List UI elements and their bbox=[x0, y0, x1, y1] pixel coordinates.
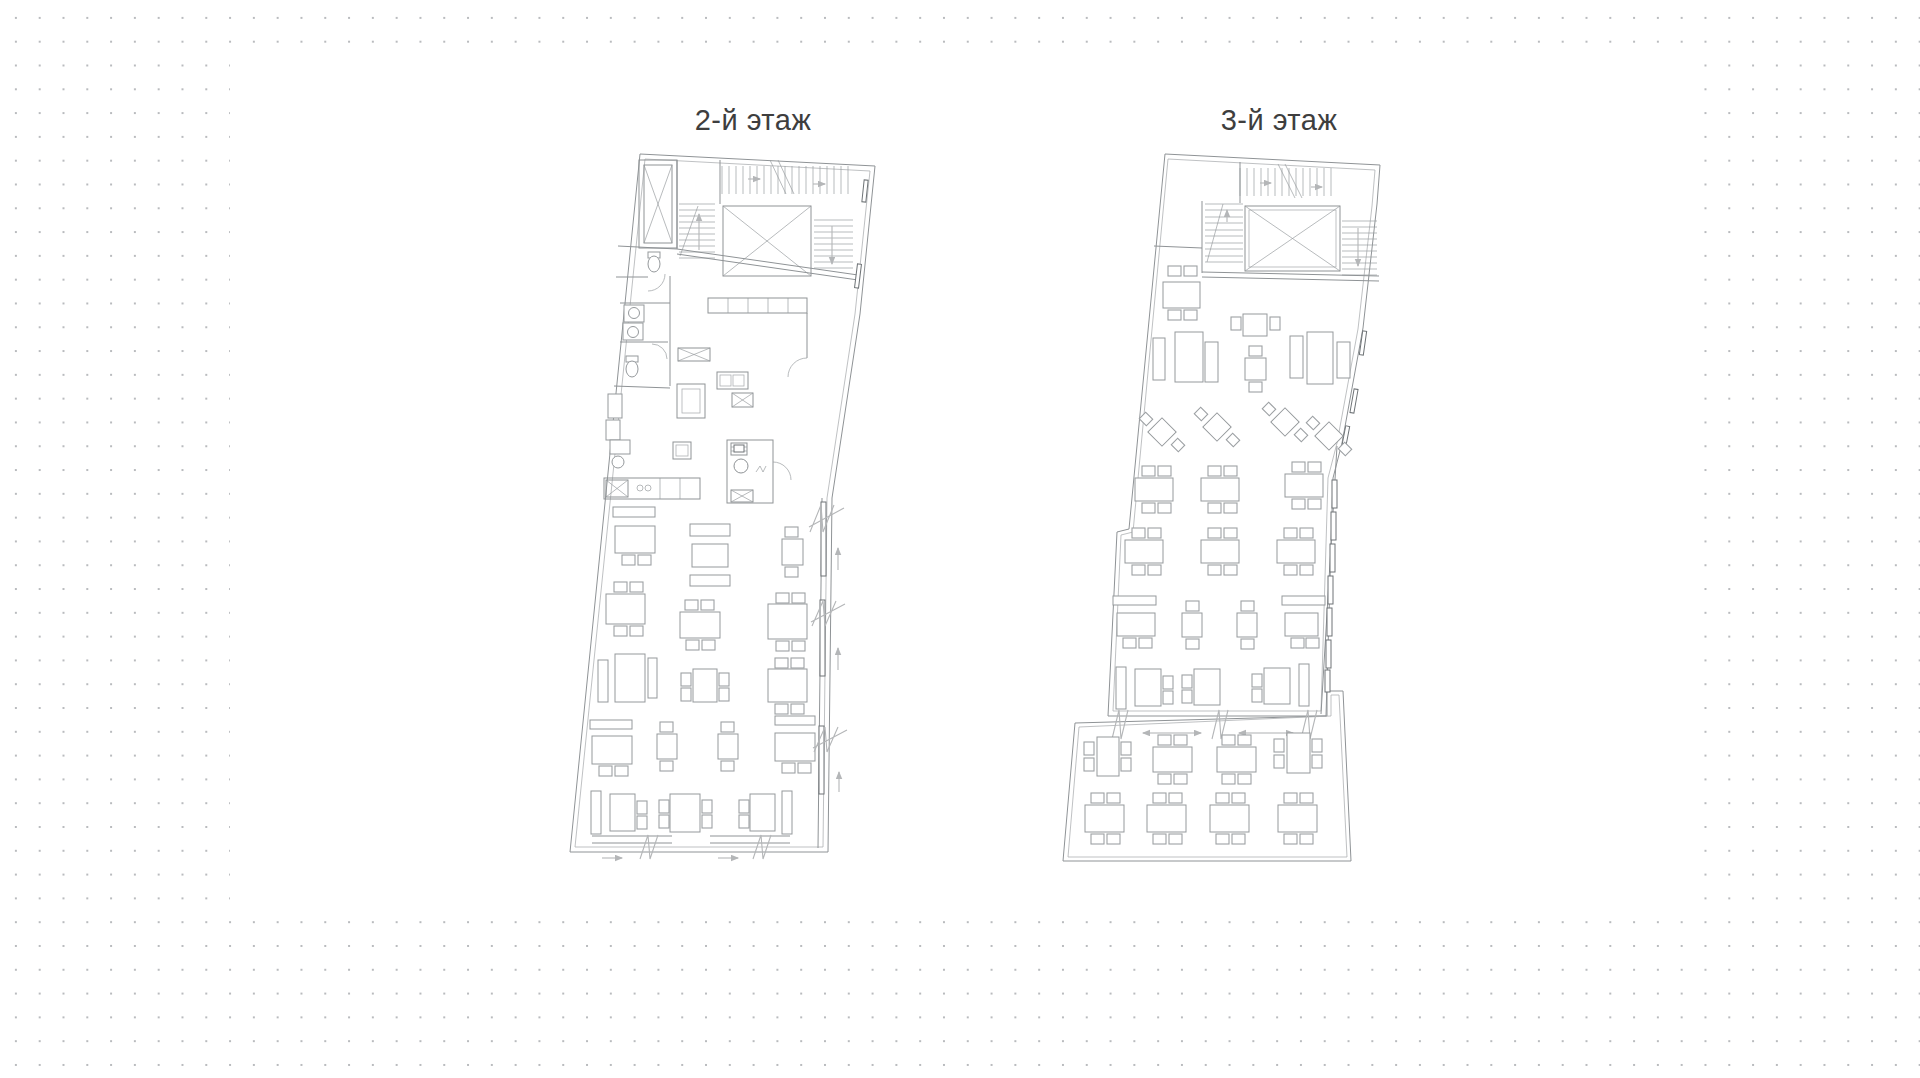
floor-2-stairwell bbox=[639, 160, 868, 288]
floor-3-dining-area bbox=[1113, 266, 1352, 709]
diamond-tables bbox=[1139, 402, 1351, 455]
floor-plan-3 bbox=[1055, 146, 1395, 881]
floor-2-dining-area bbox=[590, 507, 815, 834]
floor-3-stairwell bbox=[1154, 162, 1379, 281]
floor-3-title: 3-й этаж bbox=[1129, 104, 1429, 137]
floor-2-wc-area bbox=[606, 246, 677, 468]
plans-canvas bbox=[230, 64, 1690, 912]
floor-3-terrace-tables bbox=[1084, 733, 1322, 844]
floor-2-bar-station bbox=[727, 440, 791, 503]
floor-3-windows bbox=[1325, 331, 1367, 692]
floor-2-title: 2-й этаж bbox=[603, 104, 903, 137]
floor-plan-2 bbox=[560, 146, 890, 881]
